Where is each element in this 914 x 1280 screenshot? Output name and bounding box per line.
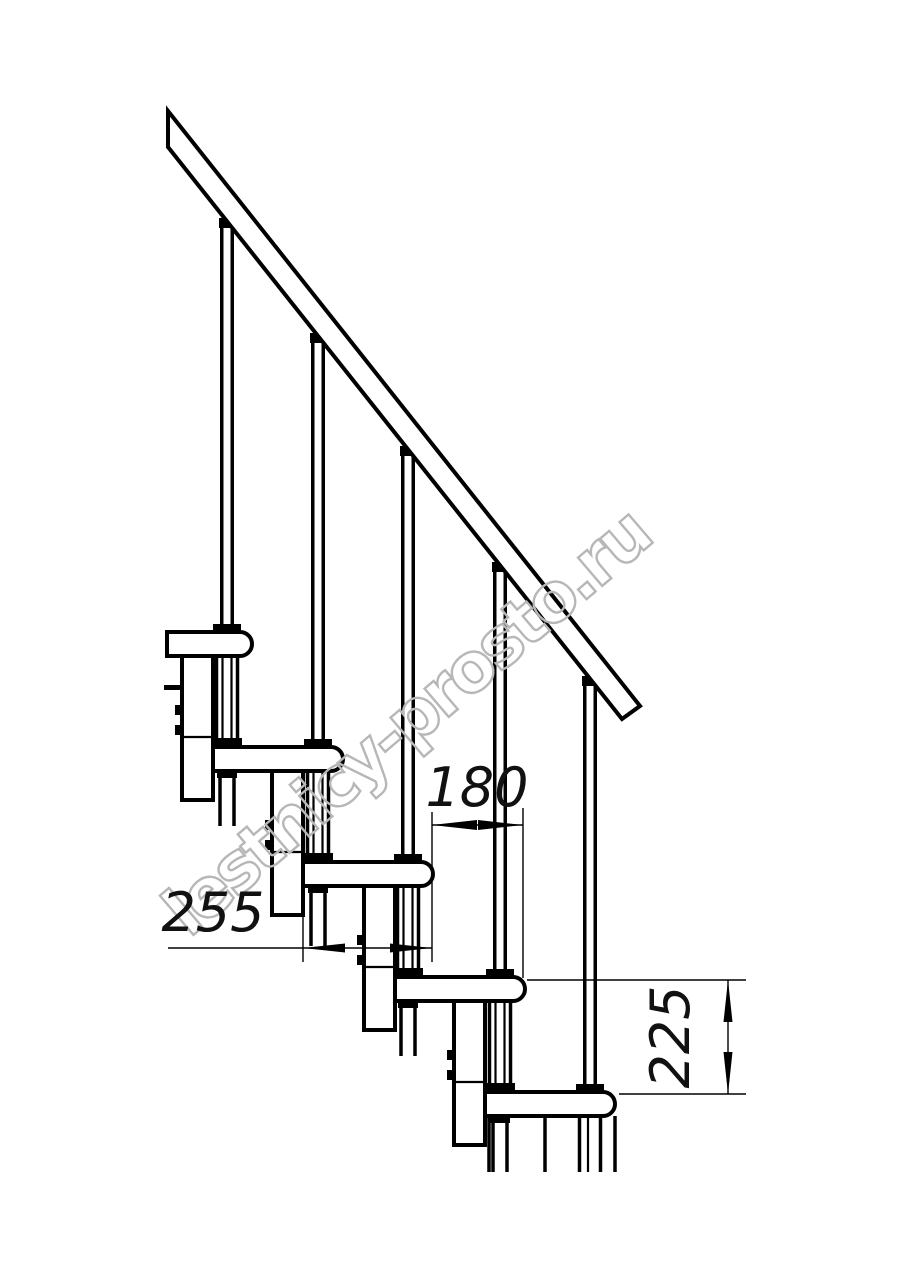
stand-column-4 bbox=[454, 1001, 485, 1145]
baluster-3 bbox=[400, 446, 416, 862]
tread-4 bbox=[395, 977, 525, 1001]
dim-225-arrow-bottom bbox=[724, 1052, 733, 1094]
dim-180-label: 180 bbox=[425, 756, 528, 819]
column-3-bolt bbox=[357, 935, 366, 945]
baluster-2 bbox=[310, 333, 326, 747]
dim-255-label: 255 bbox=[161, 881, 264, 944]
stand-column-3 bbox=[364, 886, 395, 1030]
column-4-bolt bbox=[447, 1050, 456, 1060]
dimension-rise-225: 225 bbox=[527, 980, 746, 1094]
baluster-1 bbox=[219, 218, 235, 632]
column-4-bolt bbox=[447, 1070, 456, 1080]
column-3-bolt bbox=[357, 955, 366, 965]
staircase-drawing-canvas: lestnicy-prosto.ru 180 255 225 bbox=[0, 0, 914, 1280]
staircase-technical-drawing: lestnicy-prosto.ru 180 255 225 bbox=[0, 0, 914, 1280]
tread-1 bbox=[167, 632, 252, 656]
dim-180-arrow-right bbox=[478, 820, 523, 830]
dim-225-label: 225 bbox=[639, 985, 702, 1088]
column-1-bolt bbox=[175, 725, 184, 735]
column-1-mount-plate bbox=[164, 685, 182, 690]
tread-3 bbox=[303, 862, 433, 886]
dimension-going-180: 180 bbox=[425, 756, 528, 978]
tread-5 bbox=[485, 1092, 615, 1116]
stand-column-1 bbox=[182, 656, 213, 800]
column-1-bolt bbox=[175, 705, 184, 715]
baluster-5 bbox=[582, 676, 598, 1092]
dim-225-arrow-top bbox=[724, 980, 733, 1022]
dim-180-arrow-left bbox=[432, 820, 477, 830]
